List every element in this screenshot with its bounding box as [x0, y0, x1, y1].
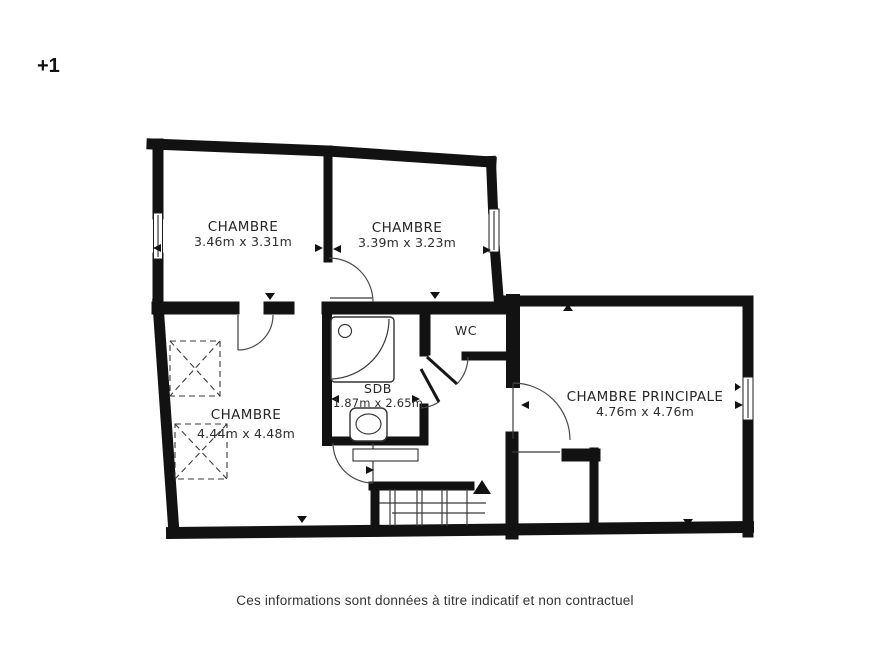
room-label-chambre-3: CHAMBRE 4.44m x 4.48m	[197, 407, 295, 441]
window-chambre-2	[489, 209, 499, 252]
window-chambre-1	[154, 213, 163, 259]
room-dimensions: 1.87m x 2.65m	[333, 396, 423, 410]
room-name: WC	[455, 323, 477, 338]
door-sdb	[421, 369, 439, 408]
footer-disclaimer: Ces informations sont données à titre in…	[236, 593, 633, 608]
room-label-chambre-principale: CHAMBRE PRINCIPALE 4.76m x 4.76m	[567, 389, 724, 419]
sdb-lower-partition	[353, 449, 418, 461]
room-name: CHAMBRE	[211, 407, 281, 423]
stair-treads	[379, 489, 486, 526]
toilet	[350, 408, 387, 441]
room-name: CHAMBRE PRINCIPALE	[567, 389, 724, 405]
room-label-chambre-2: CHAMBRE 3.39m x 3.23m	[358, 220, 456, 250]
stairs-up-arrow-icon	[473, 480, 491, 494]
room-label-wc: WC	[455, 323, 477, 338]
room-label-chambre-1: CHAMBRE 3.46m x 3.31m	[194, 219, 292, 249]
shower	[331, 317, 394, 382]
closet-box-1	[170, 341, 220, 396]
room-name: SDB	[364, 381, 392, 396]
door-chambre-3-top	[238, 315, 273, 350]
walls	[152, 144, 748, 533]
room-dimensions: 3.39m x 3.23m	[358, 235, 456, 250]
window-chambre-principale	[743, 377, 753, 420]
floor-indicator: +1	[37, 55, 60, 77]
floor-plan-page: +1 CHAMBRE 3.46m x 3.31m CHAMBRE 3.39m x…	[0, 0, 870, 652]
door-wc	[427, 357, 468, 384]
floor-plan-svg: +1 CHAMBRE 3.46m x 3.31m CHAMBRE 3.39m x…	[0, 0, 870, 652]
room-dimensions: 3.46m x 3.31m	[194, 234, 292, 249]
room-label-sdb: SDB 1.87m x 2.65m	[333, 381, 423, 410]
room-name: CHAMBRE	[208, 219, 278, 235]
room-dimensions: 4.44m x 4.48m	[197, 426, 295, 441]
room-name: CHAMBRE	[372, 220, 442, 236]
door-chambre-principale	[513, 383, 570, 440]
room-dimensions: 4.76m x 4.76m	[596, 404, 694, 419]
door-top-rooms	[329, 258, 373, 302]
